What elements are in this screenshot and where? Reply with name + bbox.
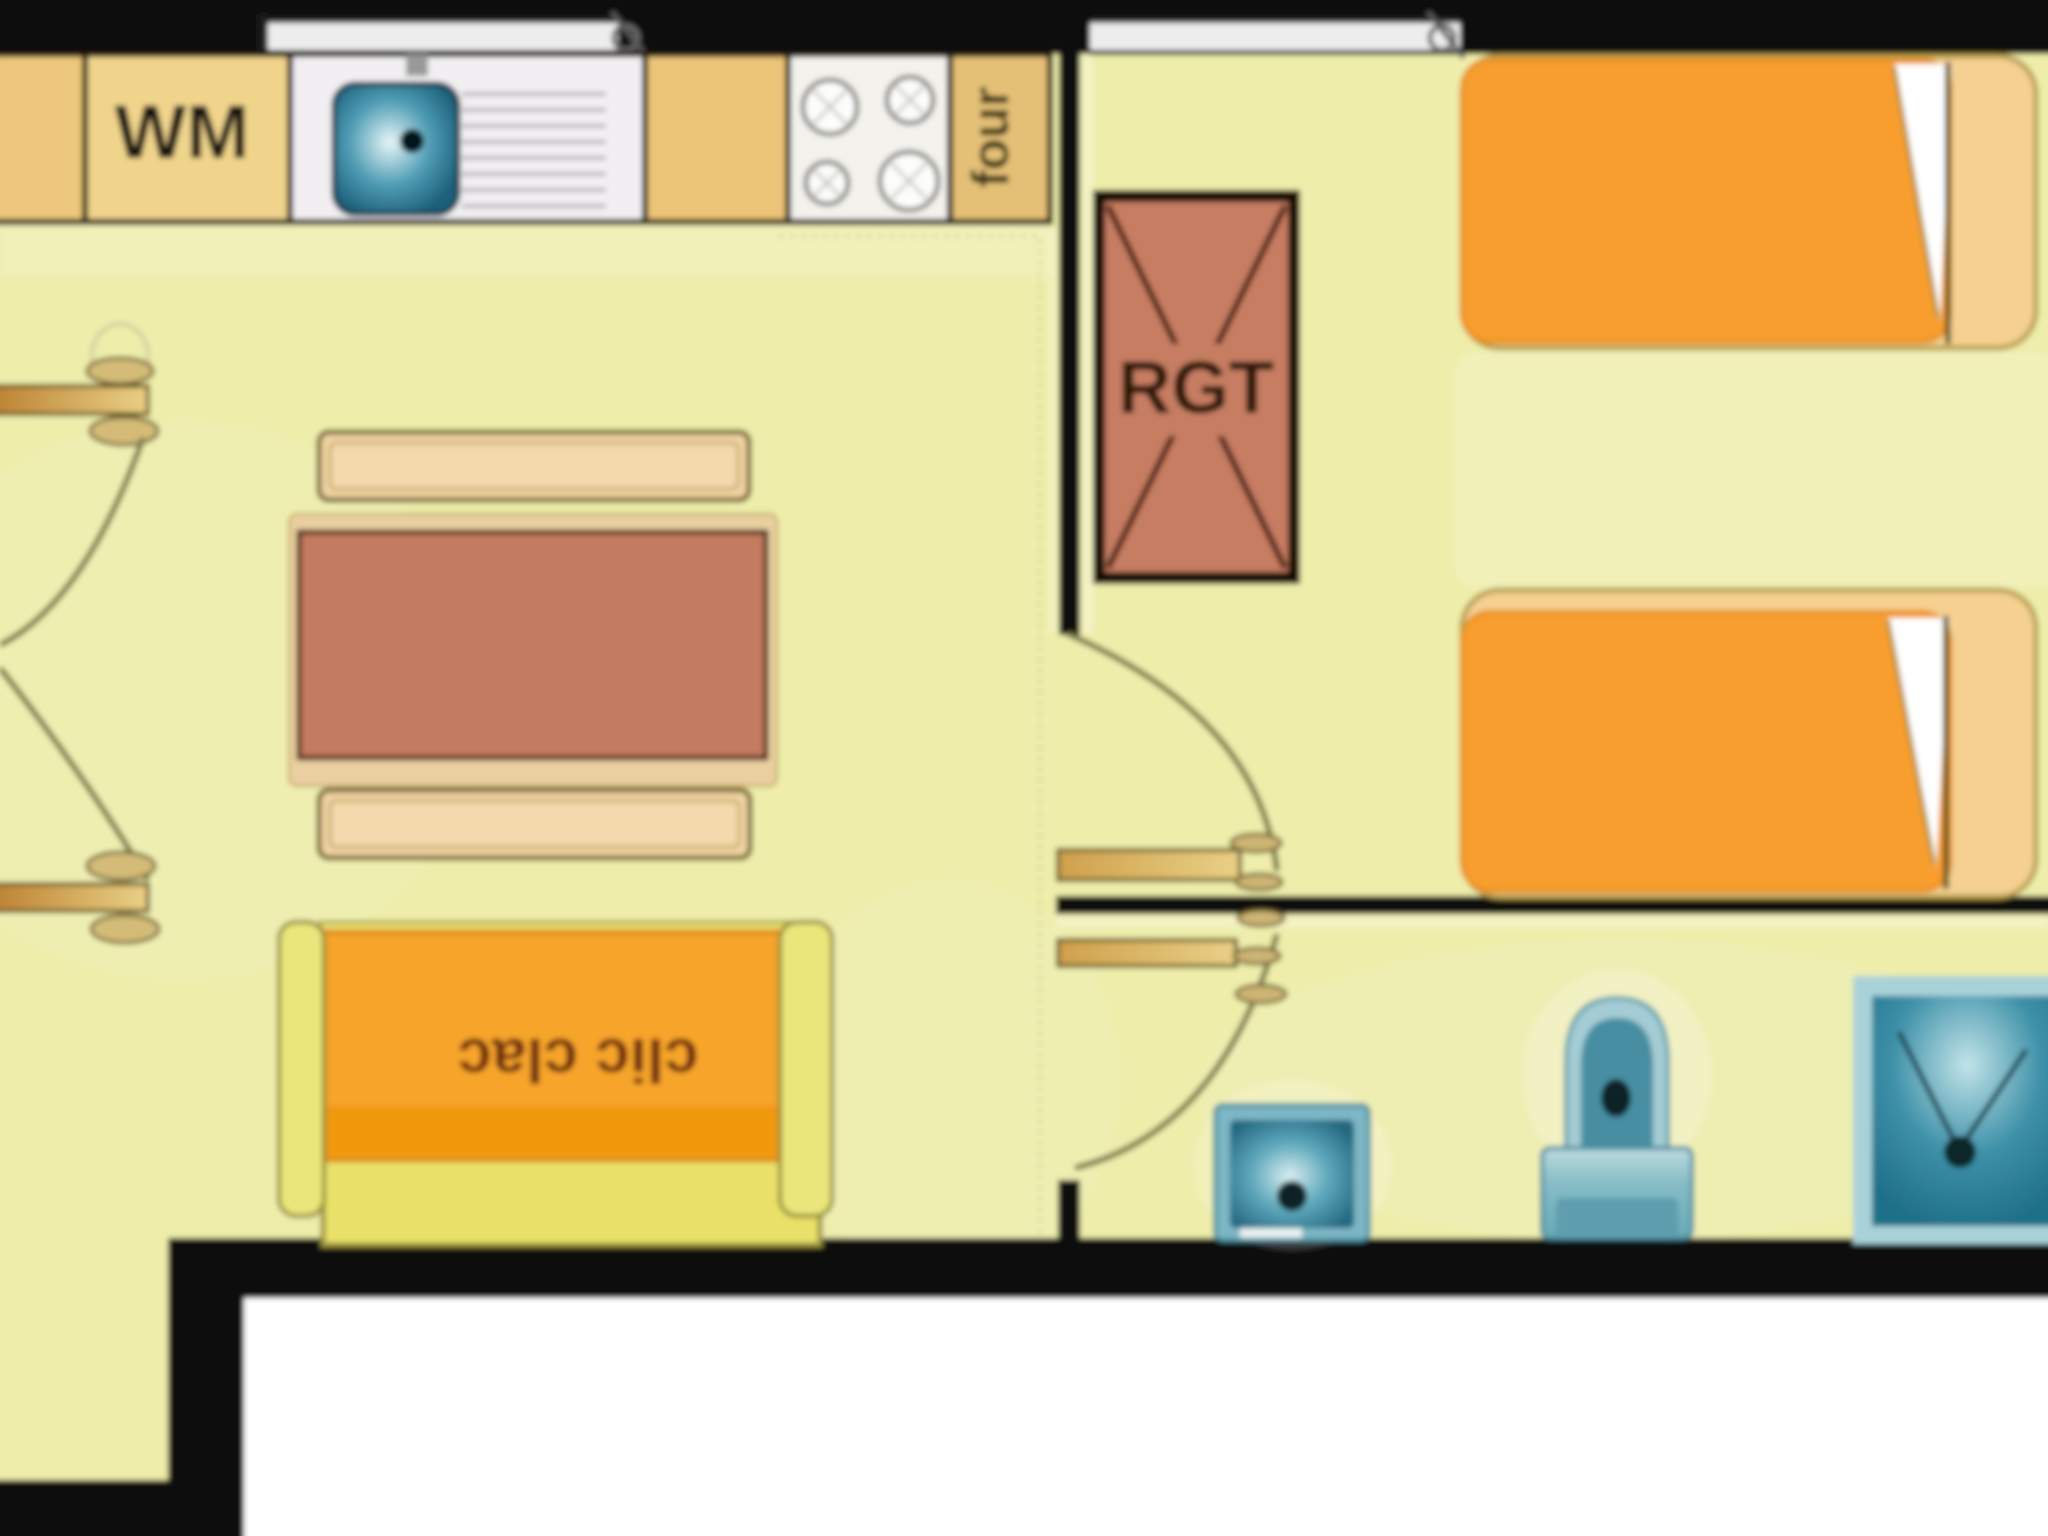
svg-text:clic clac: clic clac xyxy=(457,1025,698,1094)
svg-text:RGT: RGT xyxy=(1118,346,1274,429)
svg-text:four: four xyxy=(962,86,1020,187)
svg-text:WM: WM xyxy=(114,90,249,175)
